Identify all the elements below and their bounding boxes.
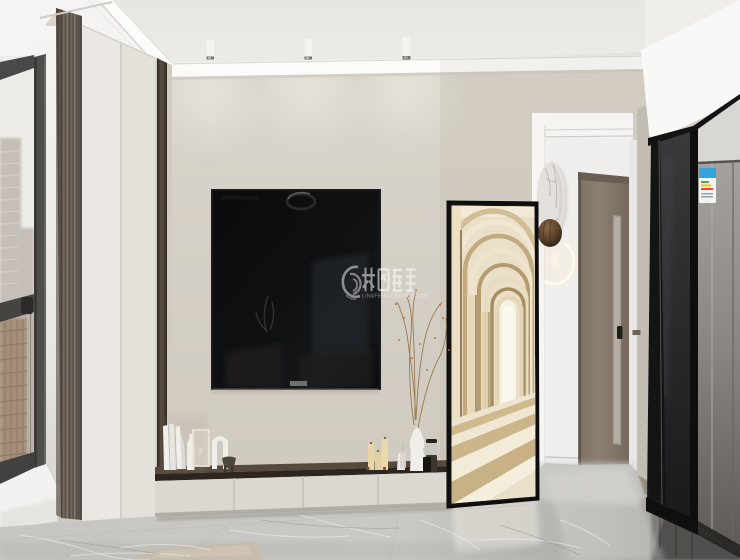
svg-text:LIN&FENG DECORATION: LIN&FENG DECORATION	[362, 294, 427, 300]
